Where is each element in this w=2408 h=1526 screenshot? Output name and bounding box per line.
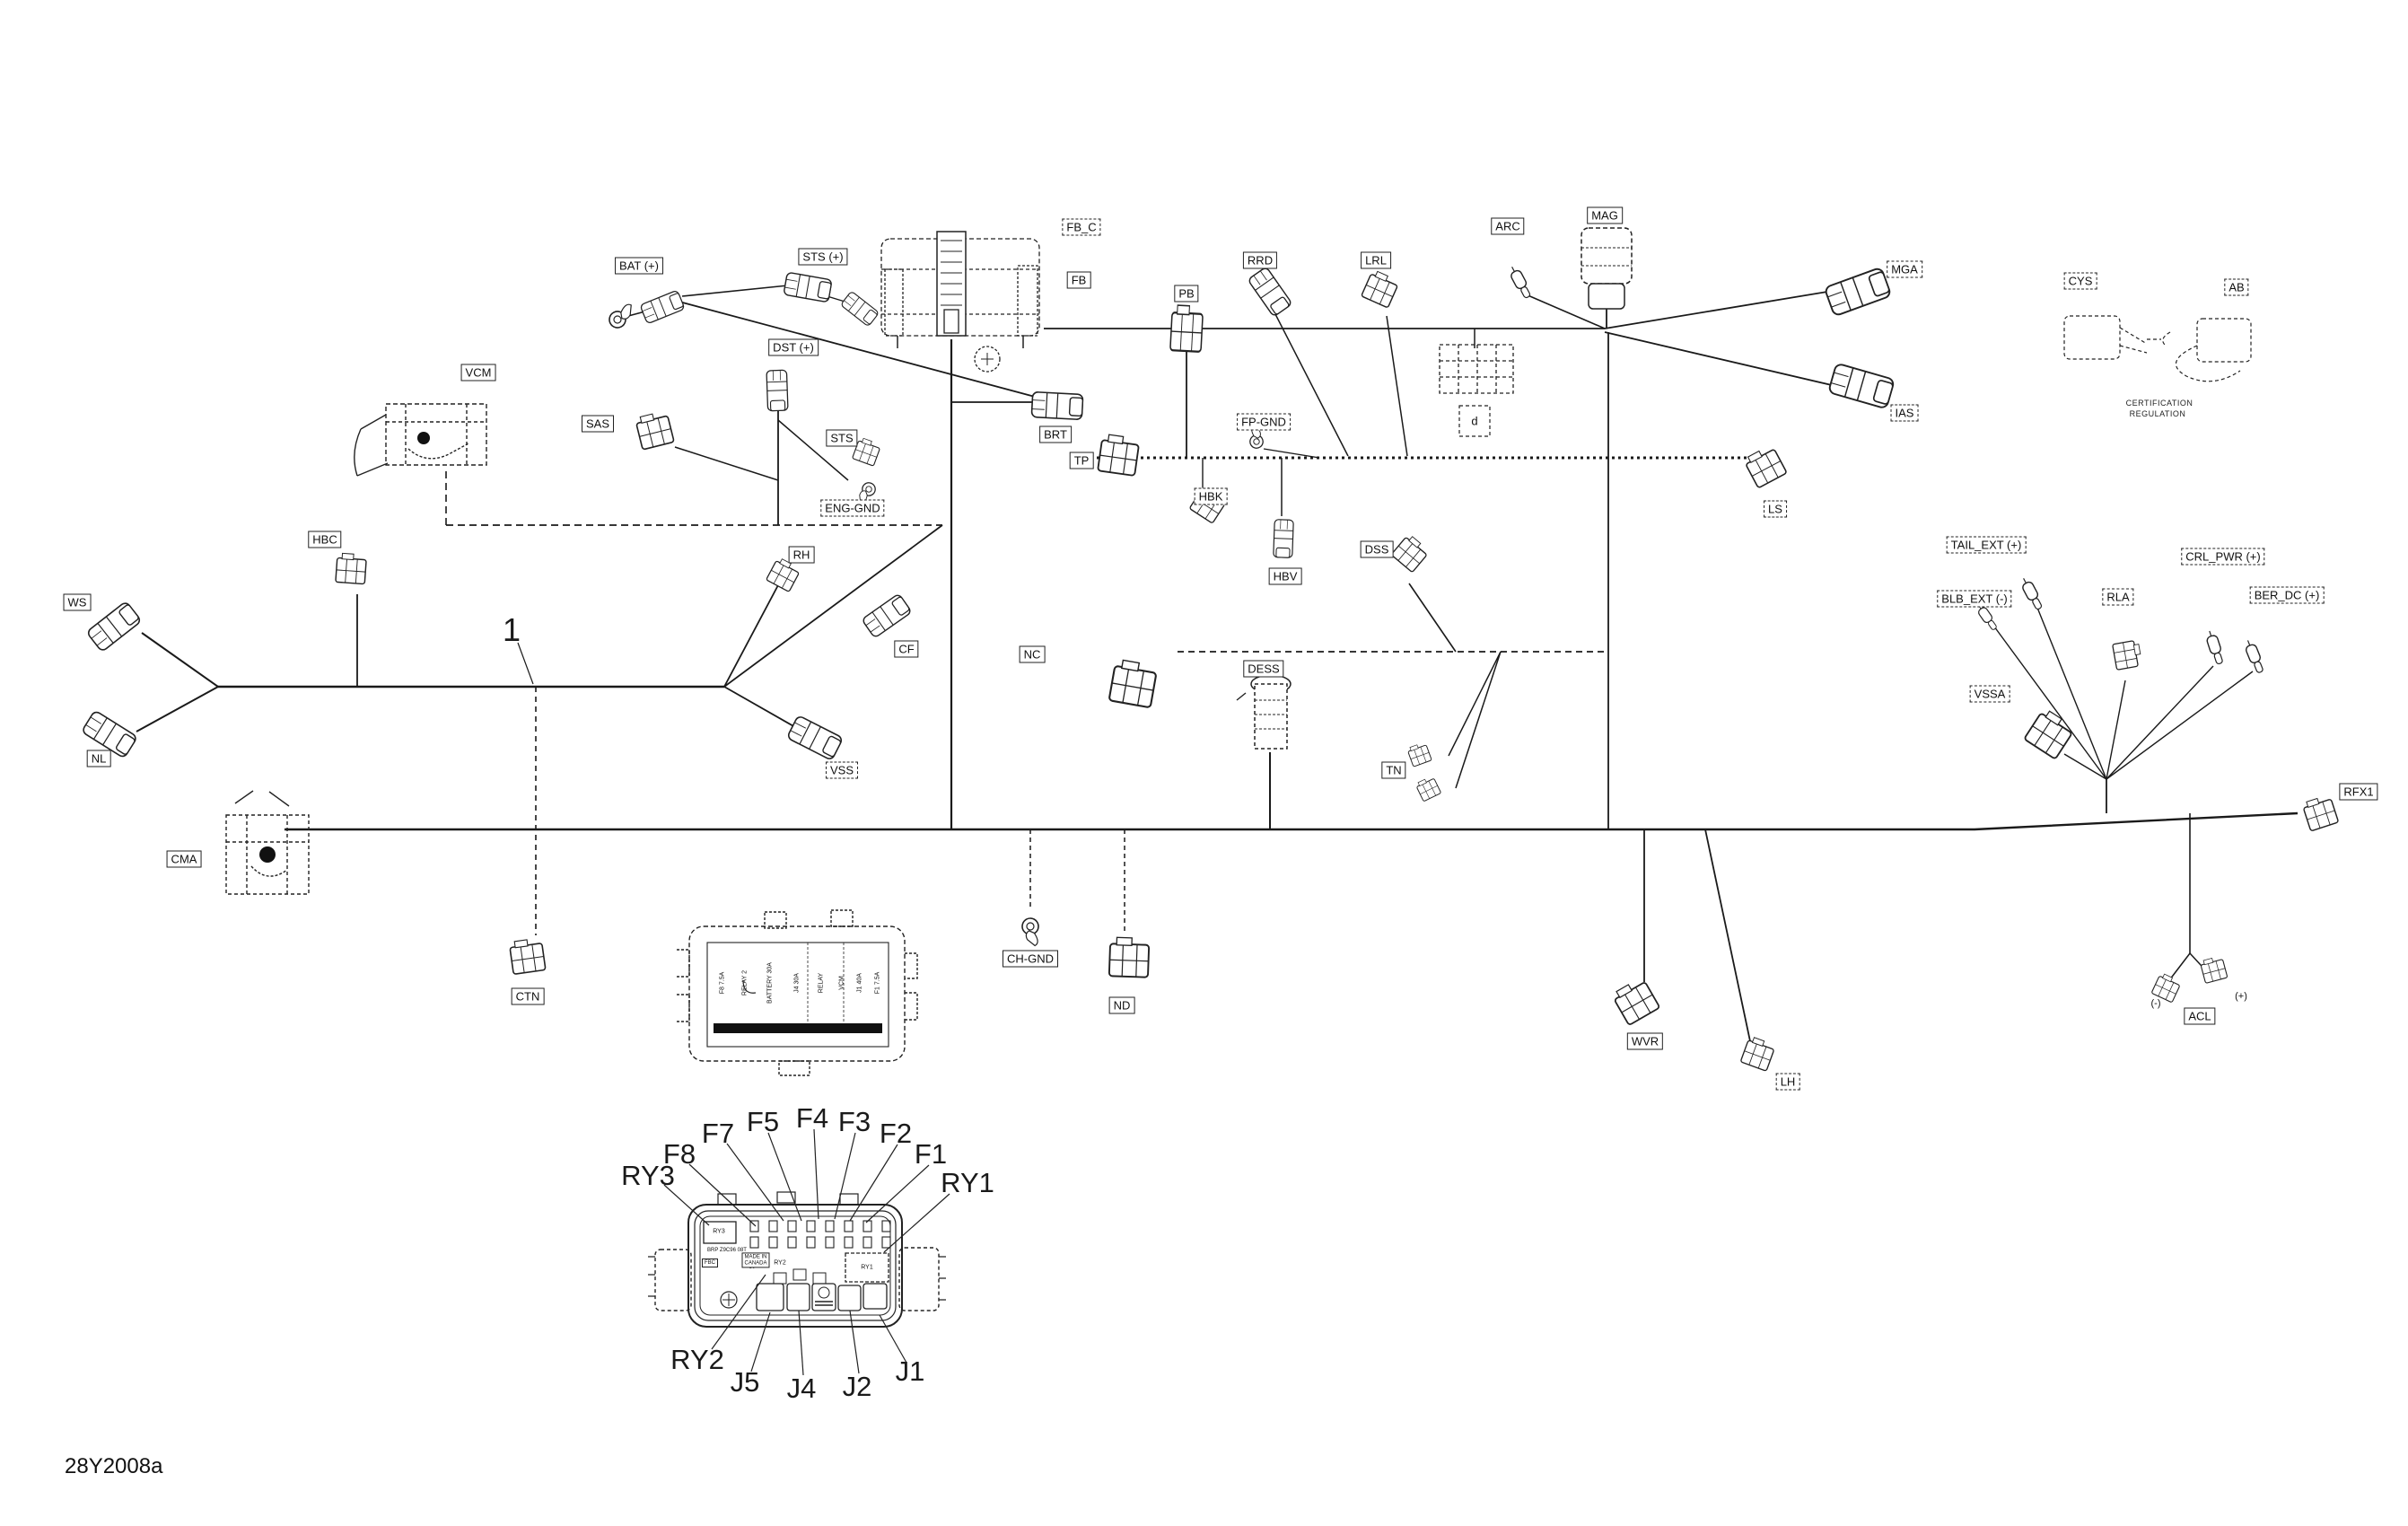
label-dss: DSS — [1361, 541, 1394, 558]
lid-print-2: BATTERY 30A — [767, 962, 774, 1004]
label-ch-gnd: CH-GND — [1003, 951, 1058, 968]
detail-note-line2: REGULATION — [2130, 409, 2186, 418]
label-rrd: RRD — [1243, 252, 1277, 269]
label-ctn: CTN — [512, 988, 545, 1005]
label-ws: WS — [64, 594, 92, 611]
label-vcm: VCM — [461, 364, 496, 381]
callout-f8: F8 — [663, 1138, 696, 1171]
figure-number: 1 — [503, 611, 521, 649]
label-brt: BRT — [1039, 426, 1072, 443]
label-rfx1: RFX1 — [2339, 784, 2377, 801]
label-rh: RH — [789, 547, 815, 564]
callout-ry1: RY1 — [941, 1167, 994, 1199]
label-fp-gnd: FP-GND — [1237, 414, 1291, 431]
label-dst-plus: DST (+) — [768, 339, 819, 356]
label-bat-plus: BAT (+) — [615, 258, 663, 275]
lid-print-3: J4 30A — [794, 973, 801, 993]
label-mag: MAG — [1587, 207, 1623, 224]
lid-print-4: RELAY — [819, 973, 825, 993]
label-fb-c: FB_C — [1062, 219, 1100, 236]
label-dess: DESS — [1243, 661, 1283, 678]
callout-j2: J2 — [843, 1371, 872, 1403]
fusebox-assembly — [881, 232, 1039, 372]
label-lrl: LRL — [1361, 252, 1391, 269]
label-nc: NC — [1020, 646, 1046, 663]
label-vss: VSS — [826, 762, 858, 779]
lcp-component — [226, 791, 309, 894]
callout-j5: J5 — [731, 1366, 760, 1399]
label-hbv: HBV — [1269, 568, 1302, 585]
callout-f7: F7 — [702, 1118, 734, 1150]
detail-sketches — [2064, 316, 2251, 381]
callout-j1: J1 — [896, 1355, 925, 1388]
mag-glyph — [1581, 228, 1632, 309]
label-tn: TN — [1381, 762, 1405, 779]
label-ber-dc: BER_DC (+) — [2250, 587, 2325, 604]
detail-ry2-text: RY2 — [774, 1260, 786, 1267]
detail-ry1-text: RY1 — [861, 1265, 873, 1271]
ecm-glyph — [1440, 345, 1513, 393]
lid-print-1: RELAY 2 — [742, 970, 749, 995]
label-acl: ACL — [2184, 1008, 2215, 1025]
label-nd: ND — [1109, 997, 1135, 1014]
label-cys: CYS — [2064, 273, 2097, 290]
detail-made-in-box: MADE IN CANADA — [741, 1252, 769, 1267]
drawing-code: 28Y2008a — [65, 1454, 162, 1479]
label-hbc: HBC — [308, 531, 341, 548]
label-crl-pwr: CRL_PWR (+) — [2181, 548, 2264, 566]
lid-print-5: VCM — [839, 976, 845, 990]
callout-f4: F4 — [796, 1102, 828, 1135]
dess-glyph — [1237, 675, 1291, 749]
lid-print-7: F1 7.5A — [875, 972, 881, 995]
detail-fbc-box: FBC — [702, 1259, 718, 1267]
label-d-legend: d — [1467, 414, 1481, 429]
callout-f1: F1 — [915, 1138, 947, 1171]
label-eng-gnd: ENG-GND — [820, 500, 884, 517]
label-blb-ext: BLB_EXT (-) — [1937, 591, 2011, 608]
label-cf: CF — [894, 641, 918, 658]
label-lh: LH — [1776, 1074, 1800, 1091]
label-sts-plus: STS (+) — [798, 249, 847, 266]
label-tail-ext: TAIL_EXT (+) — [1947, 537, 2027, 554]
label-ab: AB — [2224, 279, 2248, 296]
detail-note-line1: CERTIFICATION — [2126, 399, 2193, 408]
label-nl: NL — [87, 750, 111, 767]
callout-j4: J4 — [787, 1373, 817, 1405]
callout-f2: F2 — [880, 1118, 912, 1150]
label-arc: ARC — [1491, 218, 1524, 235]
canada-line: CANADA — [744, 1260, 766, 1266]
label-ias: IAS — [1891, 405, 1919, 422]
label-cma: CMA — [167, 851, 202, 868]
harness-diagram-page: WS NL HBC CMA CTN VCM SAS BAT (+) STS (+… — [0, 0, 2408, 1526]
label-mga: MGA — [1887, 261, 1922, 278]
label-ls: LS — [1764, 501, 1787, 518]
label-wvr: WVR — [1627, 1033, 1663, 1050]
vcm-component — [355, 404, 486, 476]
fusebox-lid — [677, 910, 917, 1075]
harness-line-art — [0, 0, 2408, 1526]
label-vssa: VSSA — [1970, 686, 2010, 703]
made-in-line: MADE IN — [744, 1254, 766, 1259]
label-pb: PB — [1174, 285, 1198, 303]
connector-glyphs — [82, 265, 2339, 1072]
label-sts: STS — [826, 430, 857, 447]
detail-ry3-text: RY3 — [713, 1229, 725, 1235]
callout-ry2: RY2 — [670, 1344, 724, 1376]
callout-f3: F3 — [838, 1106, 871, 1138]
acl-plus-mark: (+) — [2235, 991, 2247, 1002]
lid-print-6: J1 40A — [857, 973, 863, 993]
lid-print-0: F8 7.5A — [720, 972, 726, 995]
label-fb: FB — [1067, 272, 1091, 289]
detail-part-line: BRP Z9C96 08T — [707, 1248, 747, 1253]
label-hbk: HBK — [1195, 488, 1228, 505]
callout-f5: F5 — [747, 1106, 779, 1138]
label-sas: SAS — [582, 416, 614, 433]
label-rla: RLA — [2102, 589, 2133, 606]
label-tp: TP — [1070, 452, 1094, 469]
acl-minus-mark: (-) — [2151, 998, 2161, 1009]
